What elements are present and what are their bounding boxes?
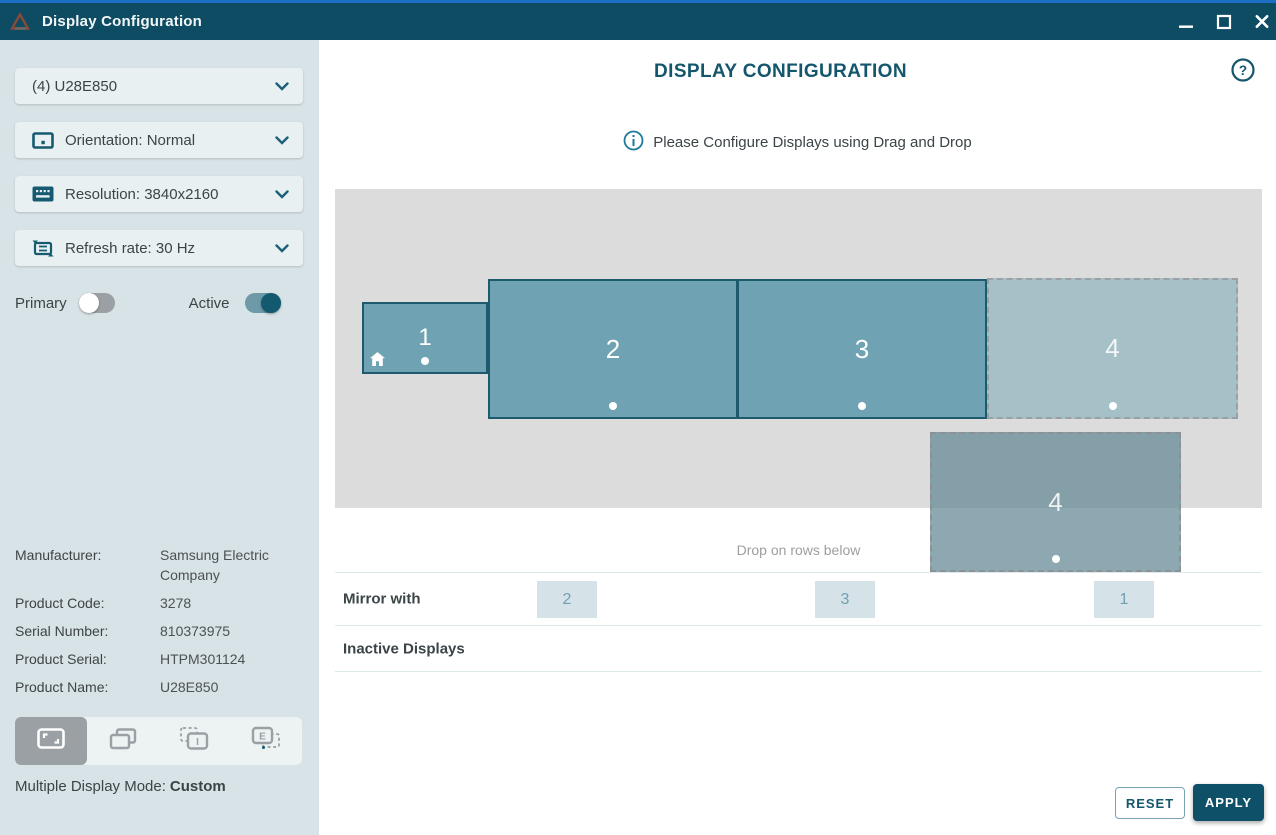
home-icon xyxy=(370,352,385,366)
resolution-label: Resolution: 3840x2160 xyxy=(65,186,267,203)
resolution-dropdown[interactable]: Resolution: 3840x2160 xyxy=(15,176,303,212)
mode-label: Multiple Display Mode: xyxy=(15,778,166,795)
page-title: DISPLAY CONFIGURATION xyxy=(319,61,1242,83)
orientation-label: Orientation: Normal xyxy=(65,132,267,149)
mirror-with-label: Mirror with xyxy=(343,591,421,608)
display-number: 1 xyxy=(418,324,431,352)
display-anchor-dot xyxy=(421,357,429,365)
detail-value: HTPM301124 xyxy=(160,649,301,669)
chevron-down-icon xyxy=(275,190,289,199)
mirror-chip-3[interactable]: 3 xyxy=(815,581,875,618)
resolution-icon xyxy=(32,186,54,202)
help-icon[interactable]: ? xyxy=(1230,57,1256,88)
detail-label: Product Name: xyxy=(15,677,160,697)
clone-mode-button[interactable] xyxy=(87,717,159,765)
detail-row: Product Serial: HTPM301124 xyxy=(15,649,303,669)
display-3[interactable]: 3 xyxy=(737,279,987,419)
custom-mode-button[interactable] xyxy=(15,717,87,765)
mirror-chip-2[interactable]: 2 xyxy=(537,581,597,618)
mirror-with-row[interactable]: Mirror with 2 3 1 xyxy=(335,572,1262,625)
toggle-knob xyxy=(261,293,281,313)
orientation-dropdown[interactable]: Orientation: Normal xyxy=(15,122,303,158)
display-number: 3 xyxy=(855,334,869,365)
close-icon[interactable] xyxy=(1254,14,1270,30)
clone-mode-icon xyxy=(107,726,139,757)
refresh-rate-icon xyxy=(32,239,54,258)
internal-mode-button[interactable]: I xyxy=(159,717,231,765)
detail-value: 810373975 xyxy=(160,621,301,641)
main-content: DISPLAY CONFIGURATION ? Please Configure… xyxy=(319,40,1276,835)
toggle-knob xyxy=(79,293,99,313)
detail-row: Manufacturer: Samsung Electric Company xyxy=(15,545,303,585)
svg-text:E: E xyxy=(259,732,266,743)
display-4-ghost: 4 xyxy=(987,278,1238,419)
monitor-details: Manufacturer: Samsung Electric Company P… xyxy=(15,545,303,697)
apply-button[interactable]: APPLY xyxy=(1193,784,1264,821)
info-text: Please Configure Displays using Drag and… xyxy=(653,134,972,151)
display-number: 4 xyxy=(1105,333,1119,364)
display-anchor-dot xyxy=(1052,555,1060,563)
display-4-dragging[interactable]: 4 xyxy=(930,432,1181,572)
info-icon xyxy=(623,130,644,155)
display-2[interactable]: 2 xyxy=(488,279,738,419)
app-logo-icon xyxy=(9,12,31,31)
display-number: 2 xyxy=(606,334,620,365)
detail-row: Product Code: 3278 xyxy=(15,593,303,613)
titlebar: Display Configuration xyxy=(0,0,1276,40)
detail-value: U28E850 xyxy=(160,677,301,697)
mirror-chip-1[interactable]: 1 xyxy=(1094,581,1154,618)
reset-button[interactable]: RESET xyxy=(1115,787,1185,819)
display-mode-toolbar: I E xyxy=(15,717,302,765)
sidebar: (4) U28E850 Orientation: Normal xyxy=(0,40,319,835)
mode-value: Custom xyxy=(170,778,226,795)
active-toggle[interactable] xyxy=(245,293,281,313)
primary-toggle-label: Primary xyxy=(15,295,67,312)
display-select-label: (4) U28E850 xyxy=(32,78,267,95)
inactive-displays-row[interactable]: Inactive Displays xyxy=(335,625,1262,672)
refresh-rate-dropdown[interactable]: Refresh rate: 30 Hz xyxy=(15,230,303,266)
chevron-down-icon xyxy=(275,136,289,145)
detail-label: Manufacturer: xyxy=(15,545,160,585)
primary-toggle[interactable] xyxy=(79,293,115,313)
display-select-dropdown[interactable]: (4) U28E850 xyxy=(15,68,303,104)
detail-row: Product Name: U28E850 xyxy=(15,677,303,697)
svg-text:?: ? xyxy=(1239,63,1247,78)
display-anchor-dot xyxy=(1109,402,1117,410)
internal-mode-icon: I xyxy=(177,725,211,757)
window-title: Display Configuration xyxy=(42,13,202,30)
minimize-icon[interactable] xyxy=(1178,14,1194,30)
detail-value: Samsung Electric Company xyxy=(160,545,301,585)
inactive-displays-label: Inactive Displays xyxy=(343,640,465,657)
info-banner: Please Configure Displays using Drag and… xyxy=(319,130,1276,155)
svg-text:I: I xyxy=(196,737,199,748)
display-anchor-dot xyxy=(858,402,866,410)
external-mode-icon: E xyxy=(249,725,283,757)
drop-rows: Mirror with 2 3 1 Inactive Displays xyxy=(335,572,1262,672)
detail-label: Product Code: xyxy=(15,593,160,613)
multiple-display-mode-line: Multiple Display Mode:Custom xyxy=(15,778,303,795)
display-number: 4 xyxy=(1048,487,1062,518)
display-1[interactable]: 1 xyxy=(362,302,488,374)
chevron-down-icon xyxy=(275,82,289,91)
orientation-icon xyxy=(32,132,54,149)
refresh-rate-label: Refresh rate: 30 Hz xyxy=(65,240,267,257)
external-mode-button[interactable]: E xyxy=(230,717,302,765)
maximize-icon[interactable] xyxy=(1216,14,1232,30)
detail-value: 3278 xyxy=(160,593,301,613)
detail-row: Serial Number: 810373975 xyxy=(15,621,303,641)
detail-label: Serial Number: xyxy=(15,621,160,641)
detail-label: Product Serial: xyxy=(15,649,160,669)
active-toggle-label: Active xyxy=(189,295,230,312)
custom-mode-icon xyxy=(35,726,67,756)
chevron-down-icon xyxy=(275,244,289,253)
display-anchor-dot xyxy=(609,402,617,410)
